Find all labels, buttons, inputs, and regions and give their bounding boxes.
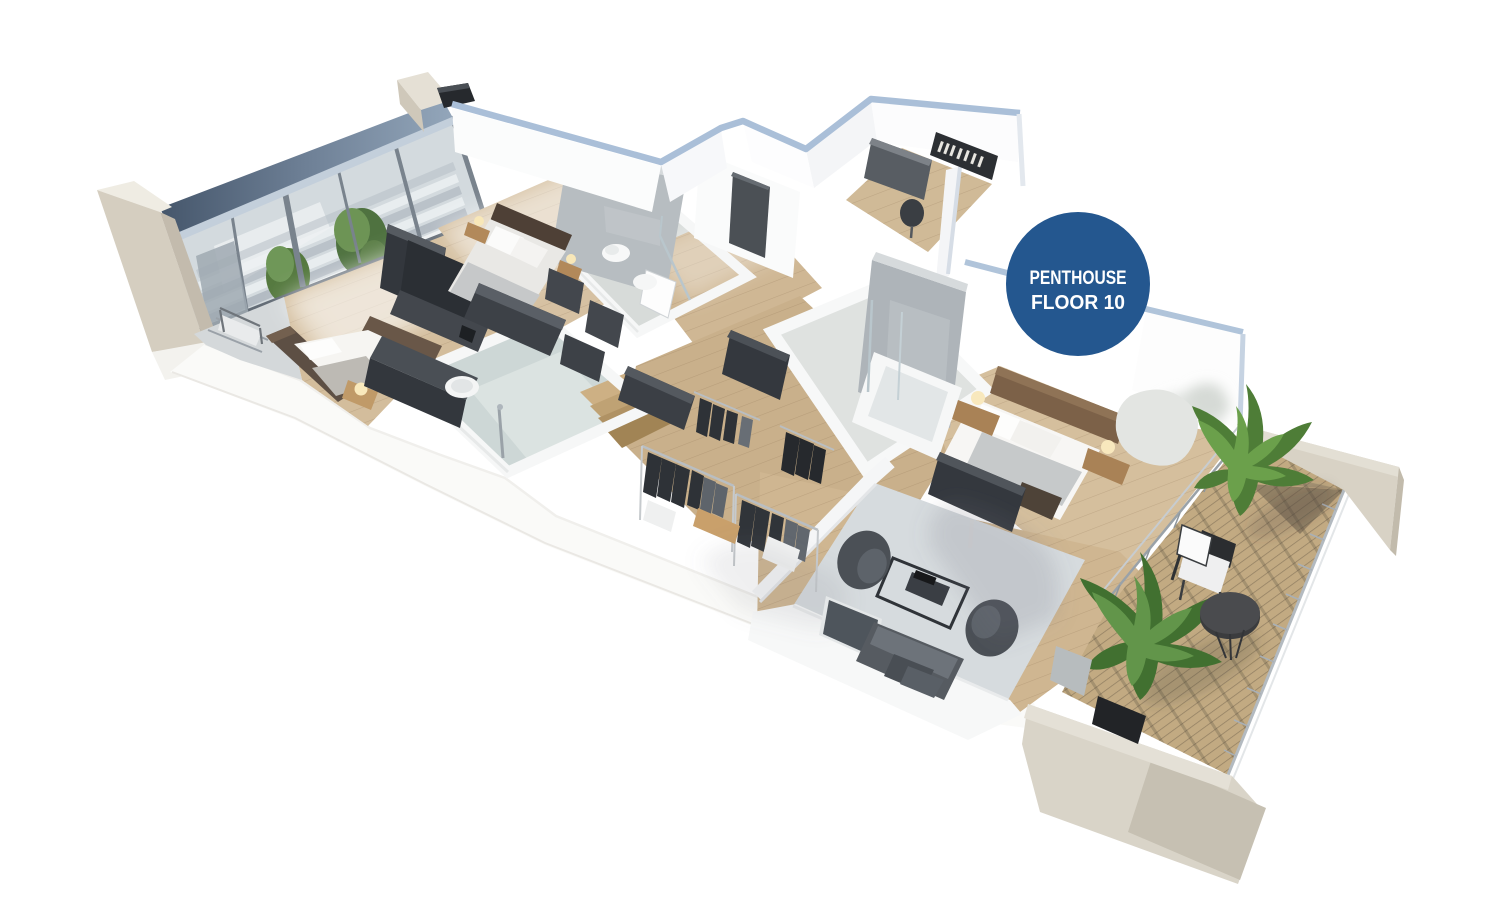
svg-text:FLOOR 10: FLOOR 10 xyxy=(1031,291,1125,314)
svg-text:PENTHOUSE: PENTHOUSE xyxy=(1030,268,1127,289)
